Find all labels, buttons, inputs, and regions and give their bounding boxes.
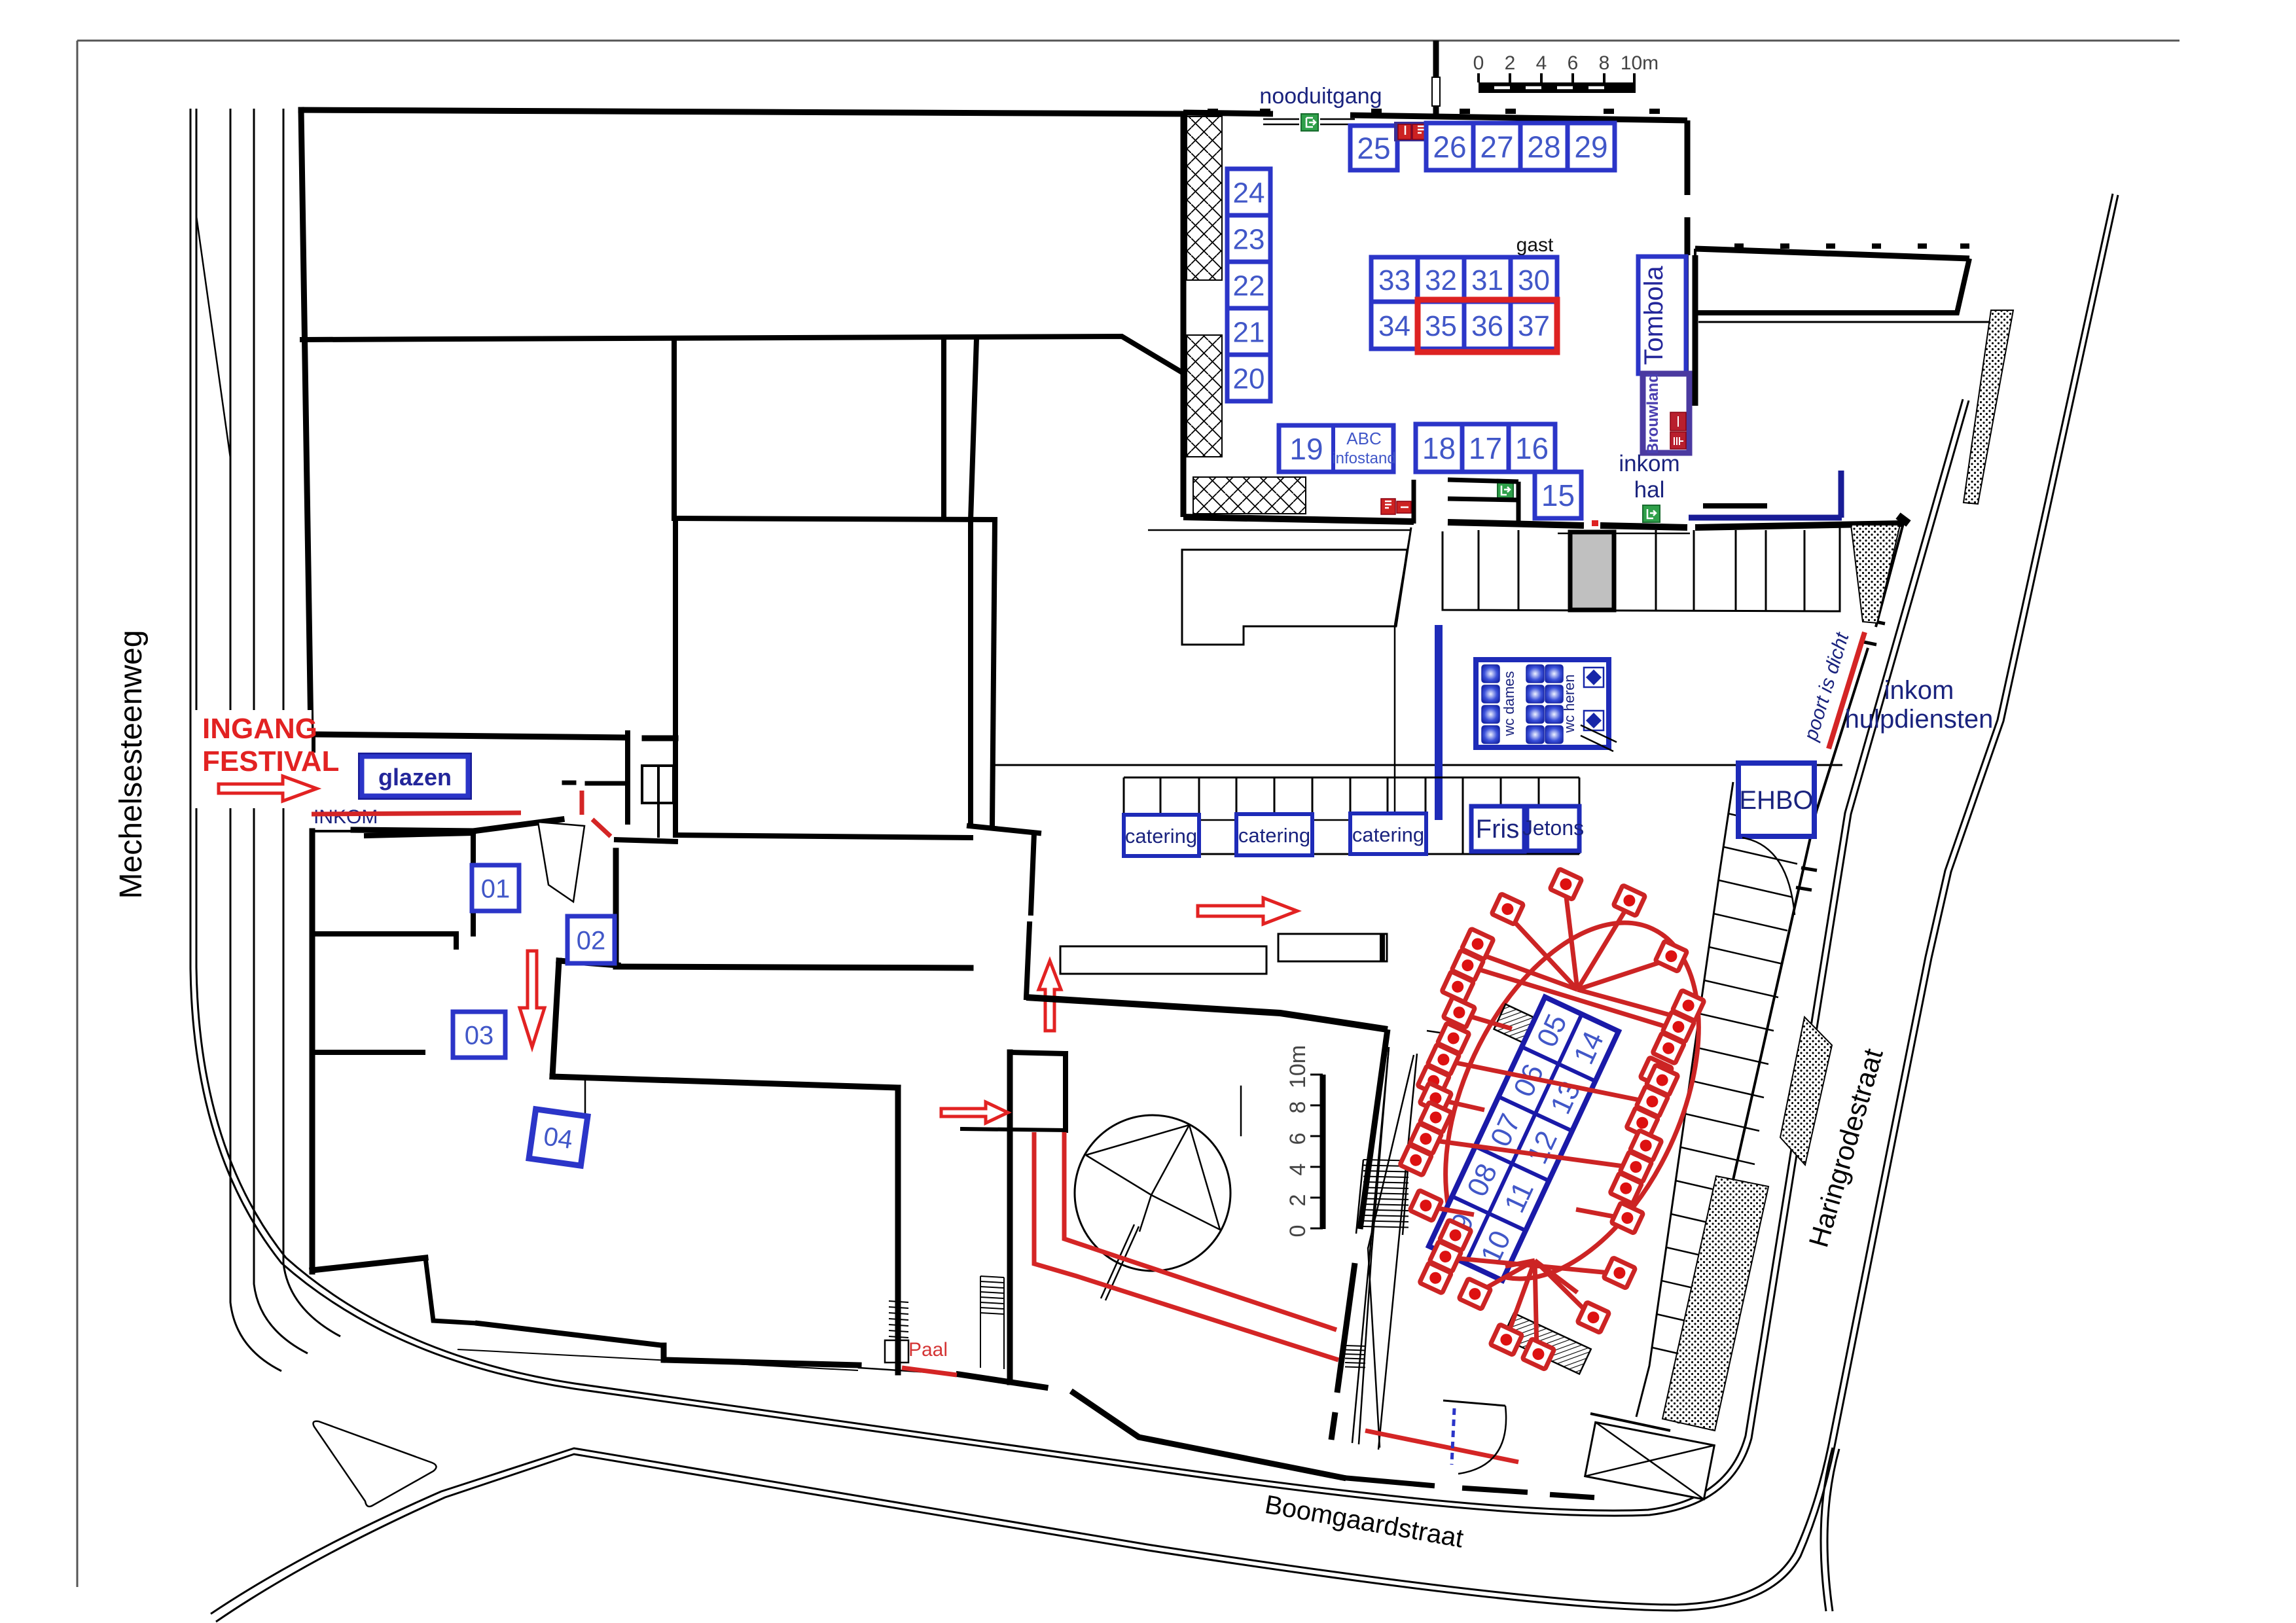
svg-text:2: 2	[1505, 52, 1516, 74]
svg-text:29: 29	[1574, 130, 1607, 164]
svg-text:31: 31	[1471, 264, 1503, 296]
svg-text:0: 0	[1473, 52, 1484, 74]
svg-text:24: 24	[1233, 177, 1265, 209]
svg-text:03: 03	[465, 1021, 494, 1050]
svg-text:33: 33	[1378, 264, 1410, 296]
svg-text:hulpdiensten: hulpdiensten	[1845, 705, 1994, 734]
svg-text:glazen: glazen	[378, 764, 452, 791]
svg-text:wc heren: wc heren	[1561, 674, 1577, 733]
svg-text:Mechelsesteenweg: Mechelsesteenweg	[114, 630, 149, 899]
svg-text:28: 28	[1527, 130, 1560, 164]
svg-text:infostand: infostand	[1332, 450, 1395, 467]
svg-text:0: 0	[1285, 1225, 1310, 1238]
svg-text:18: 18	[1422, 431, 1456, 465]
svg-text:FESTIVAL: FESTIVAL	[202, 745, 339, 777]
svg-text:23: 23	[1233, 223, 1265, 255]
svg-text:inkom: inkom	[1884, 676, 1954, 705]
svg-text:04: 04	[542, 1122, 575, 1155]
svg-text:8: 8	[1285, 1101, 1310, 1114]
svg-text:INKOM: INKOM	[314, 806, 378, 828]
svg-text:INGANG: INGANG	[202, 713, 317, 745]
svg-text:25: 25	[1357, 132, 1390, 166]
svg-text:4: 4	[1536, 52, 1547, 74]
svg-text:catering: catering	[1352, 823, 1424, 846]
svg-text:2: 2	[1285, 1194, 1310, 1207]
svg-text:ABC: ABC	[1346, 429, 1381, 448]
svg-text:15: 15	[1541, 478, 1575, 512]
svg-text:32: 32	[1425, 264, 1457, 296]
svg-text:26: 26	[1433, 130, 1466, 164]
svg-text:34: 34	[1378, 310, 1410, 342]
svg-text:8: 8	[1599, 52, 1610, 74]
svg-text:gast: gast	[1516, 234, 1554, 256]
svg-text:4: 4	[1285, 1164, 1310, 1176]
svg-text:6: 6	[1285, 1133, 1310, 1145]
svg-text:Paal: Paal	[908, 1339, 948, 1361]
svg-text:10m: 10m	[1621, 52, 1659, 74]
svg-text:catering: catering	[1125, 825, 1197, 847]
svg-text:6: 6	[1568, 52, 1579, 74]
svg-text:Tombola: Tombola	[1640, 266, 1668, 365]
svg-text:35: 35	[1425, 310, 1457, 342]
svg-text:EHBO: EHBO	[1739, 786, 1813, 815]
svg-text:21: 21	[1233, 316, 1265, 348]
svg-text:19: 19	[1289, 432, 1323, 466]
svg-text:inkom: inkom	[1619, 451, 1679, 476]
svg-text:wc dames: wc dames	[1501, 671, 1517, 736]
svg-text:37: 37	[1518, 310, 1550, 342]
svg-text:10m: 10m	[1285, 1045, 1310, 1088]
svg-text:01: 01	[481, 874, 511, 903]
svg-text:02: 02	[577, 926, 606, 955]
svg-text:Brouwland: Brouwland	[1644, 373, 1662, 454]
svg-text:Fris: Fris	[1476, 815, 1520, 844]
svg-text:17: 17	[1469, 431, 1502, 465]
svg-text:Jetons: Jetons	[1522, 816, 1584, 840]
svg-text:nooduitgang: nooduitgang	[1259, 84, 1382, 109]
svg-text:catering: catering	[1238, 824, 1310, 847]
svg-text:22: 22	[1233, 270, 1265, 302]
svg-text:20: 20	[1233, 363, 1265, 395]
svg-text:hal: hal	[1634, 477, 1665, 503]
svg-text:27: 27	[1480, 130, 1513, 164]
svg-text:16: 16	[1515, 431, 1549, 465]
svg-text:36: 36	[1471, 310, 1503, 342]
svg-text:30: 30	[1518, 264, 1550, 296]
